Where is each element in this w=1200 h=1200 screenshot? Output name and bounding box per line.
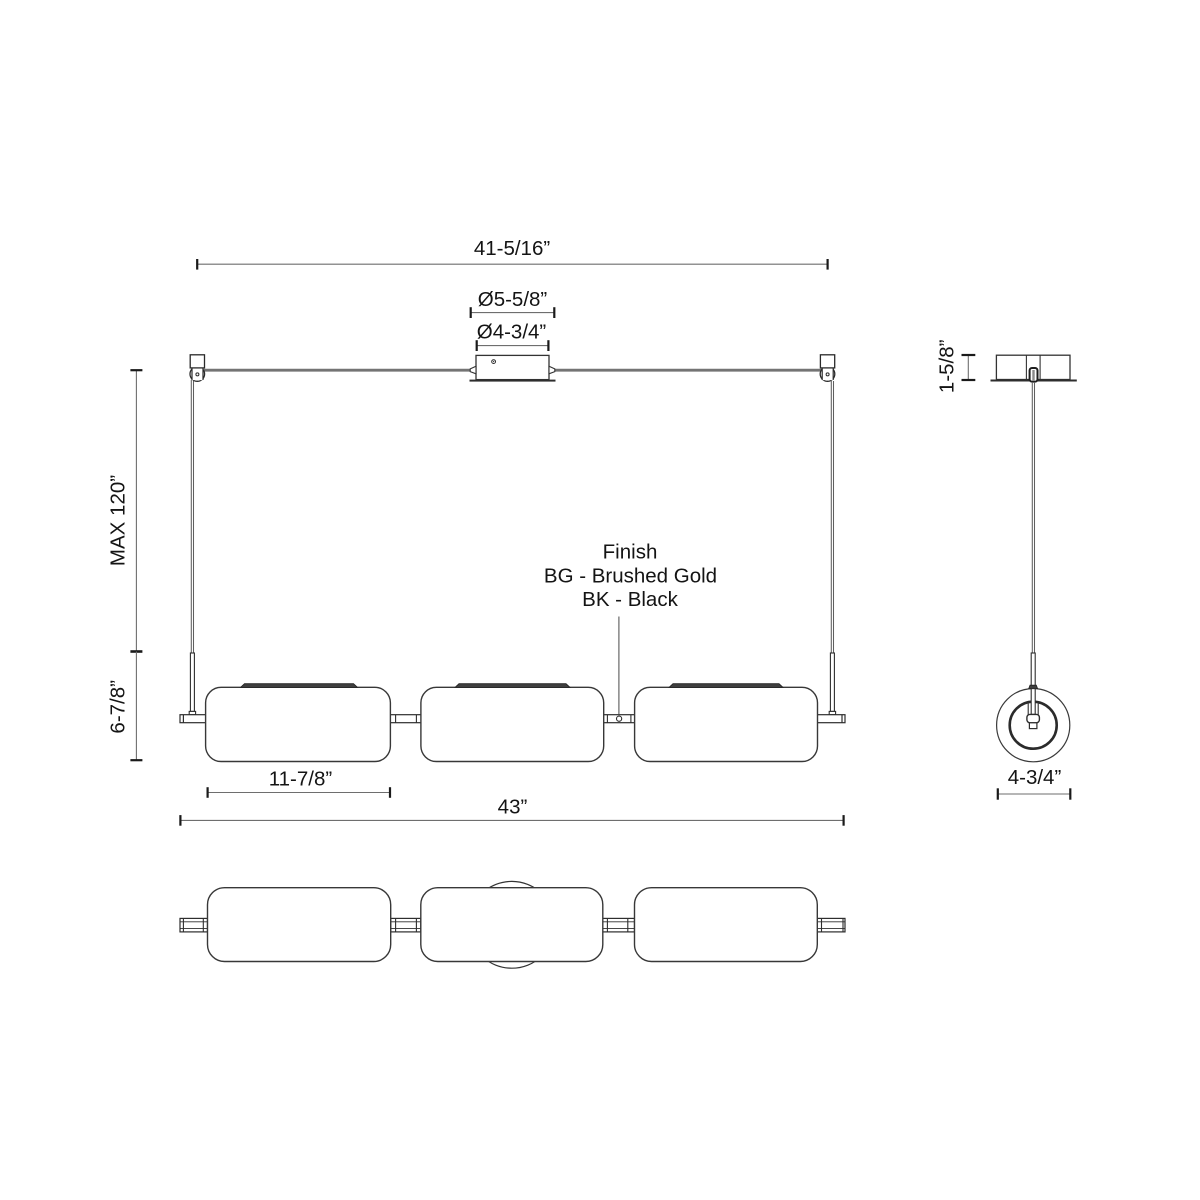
svg-text:11-7/8”: 11-7/8”	[269, 768, 333, 791]
svg-text:BG - Brushed Gold: BG - Brushed Gold	[544, 564, 717, 587]
svg-text:1-5/8”: 1-5/8”	[936, 339, 959, 393]
svg-text:MAX 120”: MAX 120”	[106, 475, 129, 566]
svg-text:6-7/8”: 6-7/8”	[106, 680, 129, 734]
svg-text:41-5/16”: 41-5/16”	[474, 237, 551, 260]
svg-text:BK - Black: BK - Black	[582, 588, 678, 611]
svg-text:Finish: Finish	[603, 541, 658, 564]
svg-text:Ø4-3/4”: Ø4-3/4”	[477, 321, 547, 344]
svg-text:4-3/4”: 4-3/4”	[1008, 766, 1062, 789]
svg-text:Ø5-5/8”: Ø5-5/8”	[478, 288, 548, 311]
svg-text:43”: 43”	[498, 796, 528, 819]
